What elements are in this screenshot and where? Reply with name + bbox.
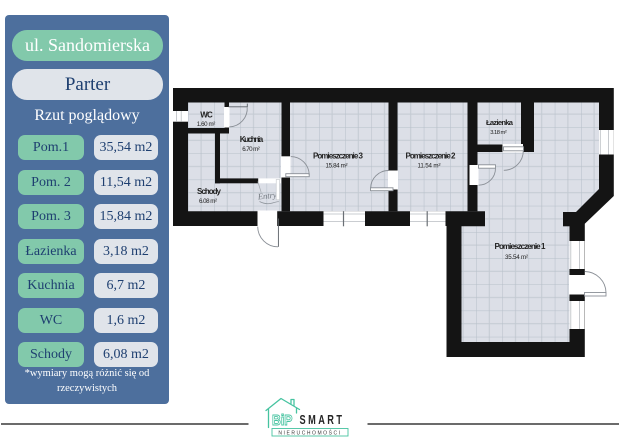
svg-text:15.84 m²: 15.84 m² (326, 163, 348, 170)
svg-text:Entry: Entry (256, 190, 277, 202)
svg-text:Pomieszczenie 2: Pomieszczenie 2 (406, 152, 457, 161)
svg-text:6.08 m²: 6.08 m² (199, 198, 217, 205)
svg-text:11.54 m²: 11.54 m² (418, 163, 441, 170)
svg-text:1.60 m²: 1.60 m² (197, 121, 216, 128)
svg-text:Pomieszczenie 3: Pomieszczenie 3 (313, 152, 364, 161)
svg-text:6.70 m²: 6.70 m² (242, 146, 260, 153)
svg-text:Łazienka: Łazienka (486, 118, 514, 127)
svg-text:Schody: Schody (197, 187, 222, 196)
svg-text:NIERUCHOMOŚCI: NIERUCHOMOŚCI (278, 428, 341, 436)
svg-text:35.54 m²: 35.54 m² (505, 254, 528, 261)
svg-text:WC: WC (200, 111, 213, 120)
svg-text:3.18 m²: 3.18 m² (490, 130, 507, 136)
svg-text:BiP: BiP (272, 412, 292, 428)
svg-text:Kuchnia: Kuchnia (240, 135, 264, 144)
svg-text:Pomieszczenie 1: Pomieszczenie 1 (495, 242, 547, 251)
svg-text:SMART: SMART (300, 414, 345, 428)
